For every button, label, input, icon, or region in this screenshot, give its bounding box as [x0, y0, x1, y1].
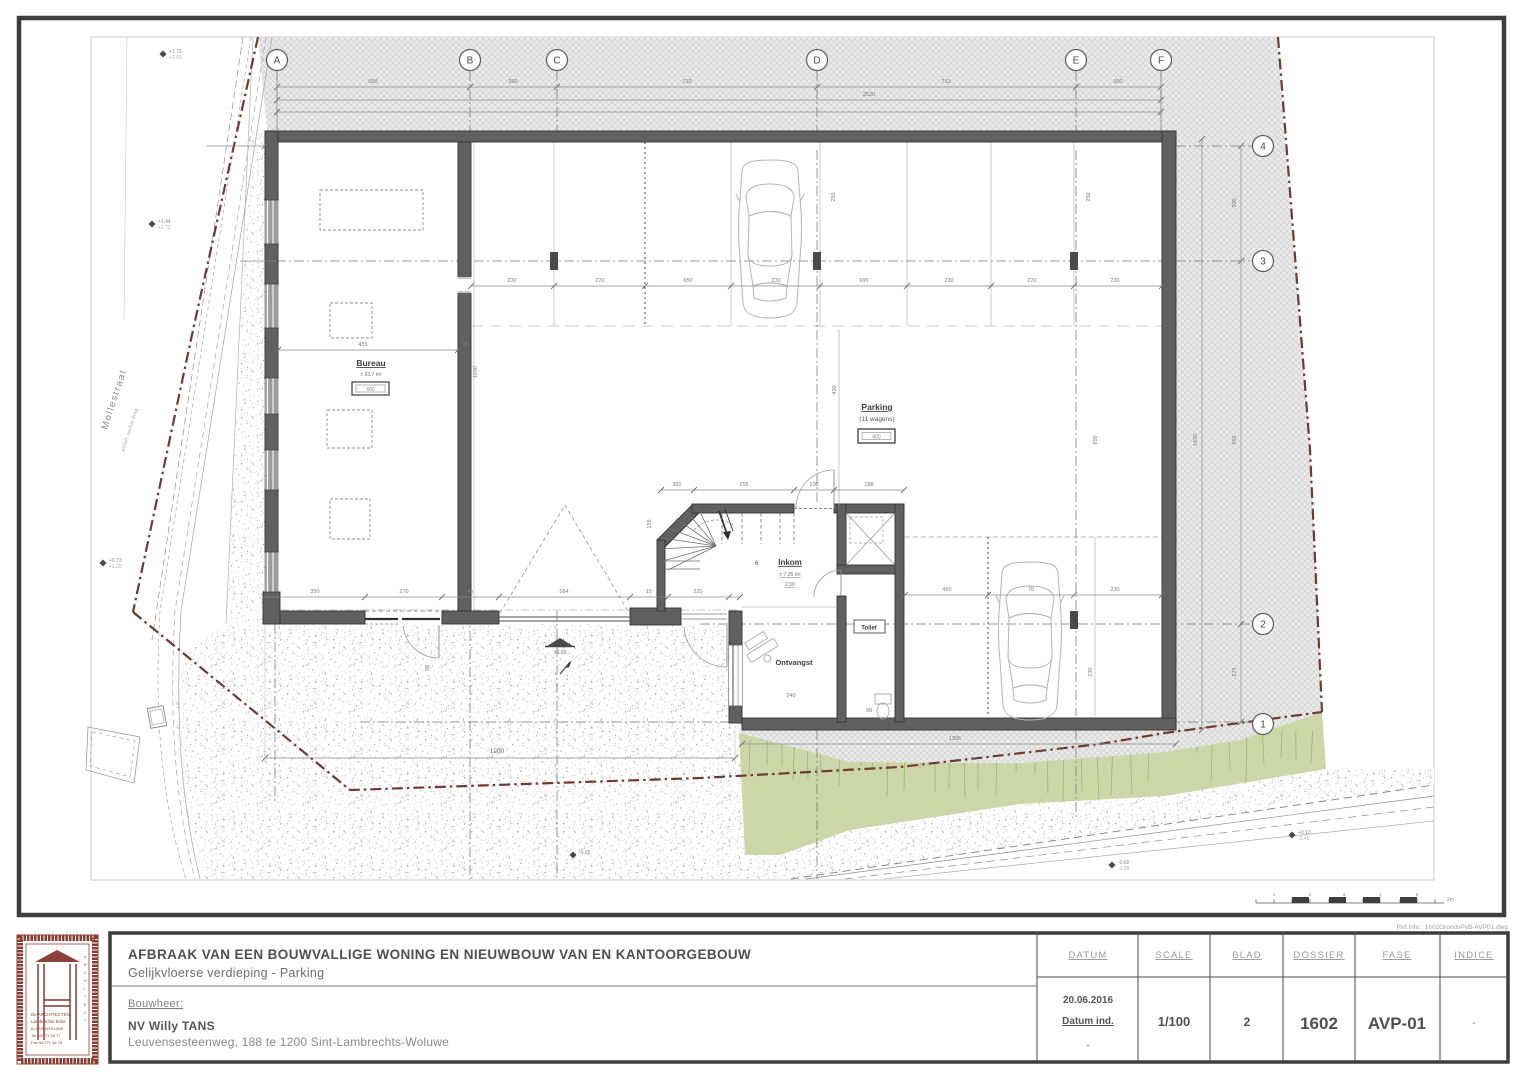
- svg-text:DATUM: DATUM: [1068, 950, 1107, 961]
- svg-text:220: 220: [595, 278, 604, 284]
- svg-text:Fax 02/771 44 78: Fax 02/771 44 78: [31, 1040, 63, 1045]
- svg-text:1: 1: [1260, 720, 1266, 731]
- svg-text:15: 15: [646, 589, 652, 595]
- svg-text:BLAD: BLAD: [1232, 950, 1262, 961]
- svg-text:650: 650: [683, 278, 692, 284]
- svg-text:± 63.7 m²: ± 63.7 m²: [360, 372, 381, 378]
- svg-text:240: 240: [786, 693, 795, 699]
- svg-text:270: 270: [399, 589, 408, 595]
- svg-text:-0.45: -0.45: [1298, 836, 1310, 842]
- svg-text:220: 220: [693, 589, 702, 595]
- svg-text:Leuvensesteenweg, 188 te 1200: Leuvensesteenweg, 188 te 1200 Sint-Lambr…: [128, 1035, 449, 1049]
- svg-text:D: D: [813, 56, 820, 67]
- svg-text:600: 600: [366, 387, 375, 393]
- svg-text:1306: 1306: [949, 736, 961, 742]
- svg-text:NV Willy TANS: NV Willy TANS: [128, 1019, 215, 1033]
- svg-text:90: 90: [866, 708, 872, 714]
- svg-text:230: 230: [1088, 667, 1094, 676]
- svg-text:230: 230: [1110, 587, 1119, 593]
- svg-text:-1.05: -1.05: [1118, 866, 1130, 872]
- svg-text:710: 710: [682, 79, 691, 85]
- svg-text:70: 70: [1028, 587, 1034, 593]
- svg-text:20.06.2016: 20.06.2016: [1063, 995, 1113, 1006]
- svg-text:1200: 1200: [490, 748, 505, 755]
- svg-text:30: 30: [425, 665, 431, 671]
- svg-text:430: 430: [832, 385, 838, 394]
- svg-text:2520: 2520: [863, 92, 875, 98]
- svg-text:Ref.Info : 1602GrondvPvB-AVP01: Ref.Info : 1602GrondvPvB-AVP01.dwg: [1396, 924, 1508, 931]
- svg-text:255: 255: [739, 482, 748, 488]
- svg-text:Lambrechts bvba: Lambrechts bvba: [31, 1019, 66, 1024]
- svg-text:Gelijkvloerse verdieping - Pa: Gelijkvloerse verdieping - Parking: [128, 966, 324, 980]
- svg-text:250: 250: [1086, 192, 1092, 201]
- svg-text:2: 2: [1260, 620, 1266, 631]
- svg-text:155: 155: [647, 519, 653, 528]
- svg-text:-0.95: -0.95: [579, 850, 591, 856]
- svg-text:950: 950: [1093, 435, 1099, 444]
- svg-text:460: 460: [942, 587, 951, 593]
- svg-text:De ARCHITECTEN: De ARCHITECTEN: [31, 1012, 70, 1017]
- svg-text:2m: 2m: [1447, 897, 1454, 903]
- svg-text:Ontvangst: Ontvangst: [775, 658, 813, 667]
- svg-text:600: 600: [872, 435, 881, 441]
- svg-text:E: E: [1073, 56, 1080, 67]
- svg-text:45: 45: [467, 589, 473, 595]
- svg-text:230: 230: [771, 278, 780, 284]
- svg-text:690: 690: [859, 278, 868, 284]
- svg-text:275: 275: [1232, 667, 1238, 676]
- svg-text:±0.00: ±0.00: [554, 650, 567, 656]
- svg-text:Bureau: Bureau: [356, 358, 385, 368]
- svg-text:Parking: Parking: [861, 402, 892, 412]
- svg-text:250: 250: [831, 192, 837, 201]
- svg-text:I: I: [84, 987, 85, 991]
- svg-text:+1.73: +1.73: [158, 225, 171, 231]
- svg-text:1/100: 1/100: [1158, 1014, 1191, 1029]
- svg-text:SCALE: SCALE: [1155, 950, 1192, 961]
- svg-text:Tel 02/771 44 77: Tel 02/771 44 77: [31, 1033, 61, 1038]
- svg-text:220: 220: [1027, 278, 1036, 284]
- svg-text:F: F: [1158, 56, 1164, 67]
- svg-text:AFBRAAK VAN EEN BOUWVALLIGE WO: AFBRAAK VAN EEN BOUWVALLIGE WONING EN NI…: [128, 947, 751, 962]
- svg-text:B-1200 WOLUWE: B-1200 WOLUWE: [31, 1026, 64, 1031]
- svg-text:300: 300: [1113, 79, 1122, 85]
- svg-text:550: 550: [368, 79, 377, 85]
- svg-text:2: 2: [1244, 1015, 1251, 1029]
- svg-text:-: -: [1087, 1040, 1090, 1050]
- svg-text:965: 965: [1232, 435, 1238, 444]
- svg-text:4: 4: [1260, 142, 1266, 153]
- svg-text:AVP-01: AVP-01: [1368, 1014, 1426, 1033]
- svg-text:DOSSIER: DOSSIER: [1293, 950, 1344, 961]
- svg-text:564: 564: [559, 589, 568, 595]
- svg-text:C: C: [553, 56, 560, 67]
- svg-text:2.50: 2.50: [785, 582, 795, 588]
- svg-text:+2.02: +2.02: [169, 55, 182, 61]
- svg-text:INDICE: INDICE: [1454, 950, 1493, 961]
- svg-text:188: 188: [864, 482, 873, 488]
- svg-text:Toilet: Toilet: [861, 626, 877, 632]
- svg-text:301: 301: [672, 482, 681, 488]
- svg-text:455: 455: [358, 342, 367, 348]
- svg-text:Bouwheer:: Bouwheer:: [128, 998, 183, 1010]
- svg-text:713: 713: [941, 79, 950, 85]
- svg-text:(11 wagens): (11 wagens): [859, 416, 894, 423]
- svg-text:Datum ind.: Datum ind.: [1062, 1016, 1114, 1027]
- svg-text:± 7.35 m²: ± 7.35 m²: [779, 572, 800, 578]
- svg-text:230: 230: [1110, 278, 1119, 284]
- svg-text:360: 360: [508, 79, 517, 85]
- svg-text:1602: 1602: [1300, 1014, 1338, 1033]
- svg-text:350: 350: [310, 589, 319, 595]
- svg-text:300: 300: [1232, 198, 1238, 207]
- svg-text:FASE: FASE: [1382, 950, 1411, 961]
- svg-text:A: A: [274, 56, 281, 67]
- svg-text:B: B: [467, 56, 474, 67]
- svg-text:-: -: [1472, 1018, 1475, 1029]
- svg-text:35: 35: [463, 342, 469, 348]
- svg-text:230: 230: [507, 278, 516, 284]
- svg-text:100: 100: [809, 482, 818, 488]
- svg-text:6: 6: [755, 560, 759, 567]
- svg-text:+1.20: +1.20: [109, 564, 122, 570]
- svg-text:Inkom: Inkom: [778, 558, 802, 567]
- svg-text:3: 3: [1260, 257, 1266, 268]
- svg-text:1430: 1430: [1193, 434, 1199, 446]
- svg-text:230: 230: [944, 278, 953, 284]
